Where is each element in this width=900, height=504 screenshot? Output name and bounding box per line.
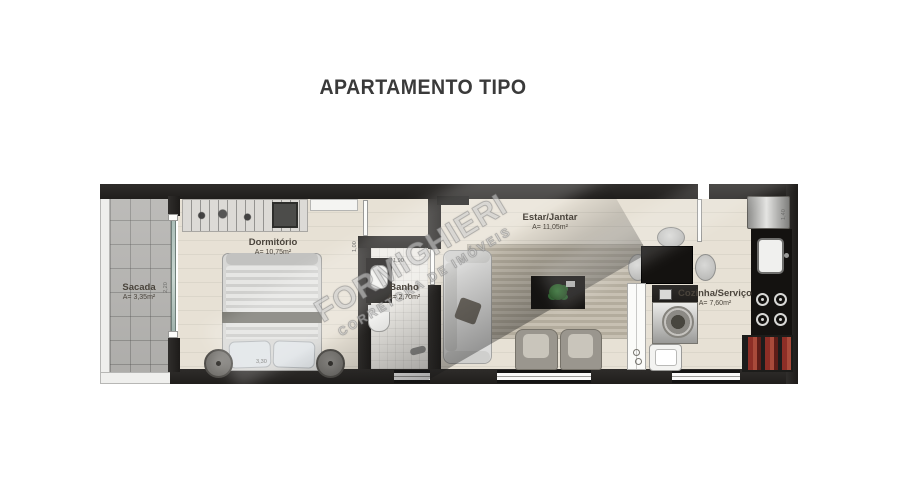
wall-top: [100, 184, 698, 199]
glass-door-handle-bottom: [168, 331, 178, 338]
pivot-dot-1: [633, 349, 640, 356]
dining-chair-top: [657, 227, 685, 248]
plant-icon: [549, 284, 567, 300]
window-kitchen: [672, 370, 740, 383]
room-name-estar: Estar/Jantar: [502, 213, 598, 224]
nightstand-left-lamp: [216, 361, 221, 366]
kitchen-faucet: [784, 253, 789, 258]
sofa-arm-top: [445, 251, 490, 263]
dining-table: [641, 246, 693, 284]
dim-sacada-door: 2,20: [163, 282, 169, 293]
dim-banho-counter: 1,90: [393, 258, 404, 264]
wall-balcony-stub-bottom: [168, 338, 180, 372]
bed-pillow-right: [273, 340, 316, 368]
room-area-sacada: A= 3,35m²: [106, 294, 172, 302]
window-bathroom: [394, 370, 430, 383]
room-label-dormitorio: Dormitório A= 10,75m²: [230, 238, 316, 257]
window-living: [497, 370, 591, 383]
dim-cozinha-depth: 1,40: [781, 209, 787, 220]
dining-chair-right: [695, 254, 716, 281]
wall-bath-top: [358, 236, 428, 248]
burner-2: [774, 293, 787, 306]
page-title: APARTAMENTO TIPO: [319, 76, 526, 100]
page: { "title": "APARTAMENTO TIPO", "watermar…: [0, 0, 900, 504]
balcony-glass-door: [171, 216, 176, 338]
bed-duvet-lower: [226, 323, 318, 339]
pivot-dot-2: [635, 358, 642, 365]
room-label-estar: Estar/Jantar A= 11,05m²: [502, 213, 598, 232]
washer-kitchen-sink-inset: [659, 289, 672, 300]
armchair-left-cushion: [523, 334, 549, 358]
glass-door-handle-top: [168, 214, 178, 221]
dim-dormitorio-width: 3,30: [256, 359, 267, 365]
room-label-banho: Banho A= 2,70m²: [378, 283, 430, 302]
armchair-right-cushion: [568, 334, 593, 358]
toilet-tank: [368, 305, 390, 312]
column-living: [437, 196, 469, 205]
room-name-cozinha: Cozinha/Serviço: [672, 289, 758, 300]
kitchen-sink: [757, 238, 784, 274]
room-area-estar: A= 11,05m²: [502, 224, 598, 232]
bathroom-door-leaf: [430, 249, 435, 285]
service-door-panel: [627, 283, 646, 370]
burner-3: [756, 313, 769, 326]
wardrobe-shelf: [310, 199, 358, 211]
room-area-banho: A= 2,70m²: [378, 294, 430, 302]
dim-banho-width: 1,00: [352, 241, 358, 252]
bedroom-door-leaf: [363, 200, 368, 236]
room-label-cozinha: Cozinha/Serviço A= 7,60m²: [672, 289, 758, 308]
sofa-arm-bottom: [445, 351, 490, 363]
bed-duvet-upper: [226, 266, 318, 312]
room-name-banho: Banho: [378, 283, 430, 294]
wall-balcony-stub-top: [168, 196, 180, 216]
bed-mid-band: [222, 312, 322, 323]
remote-item: [566, 281, 575, 287]
entrance-door-leaf: [697, 199, 702, 242]
balcony-rail-bottom: [100, 372, 172, 384]
sofa-back: [445, 263, 457, 351]
washing-machine-door: [662, 306, 694, 338]
wardrobe-box: [272, 202, 298, 228]
shelf-unit: [742, 335, 793, 372]
room-name-dormitorio: Dormitório: [230, 238, 316, 249]
burner-4: [774, 313, 787, 326]
laundry-tank-basin: [655, 349, 677, 366]
room-area-cozinha: A= 7,60m²: [672, 300, 758, 308]
nightstand-right-lamp: [328, 361, 333, 366]
room-area-dormitorio: A= 10,75m²: [230, 249, 316, 257]
wall-bath-living-top: [428, 199, 441, 249]
